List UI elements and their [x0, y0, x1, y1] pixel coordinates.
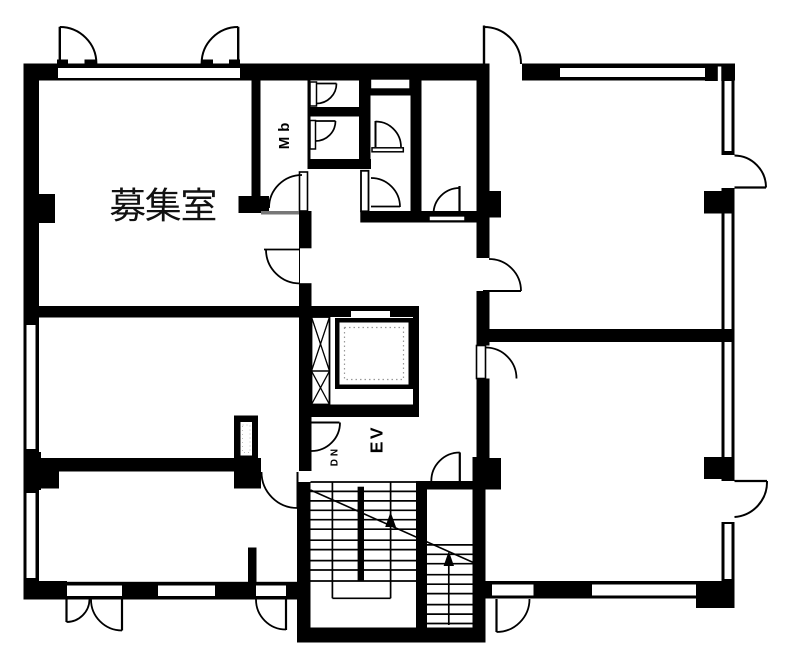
svg-text:EV: EV — [366, 425, 386, 453]
svg-text:Mb: Mb — [276, 118, 293, 150]
svg-text:DN: DN — [330, 446, 341, 466]
